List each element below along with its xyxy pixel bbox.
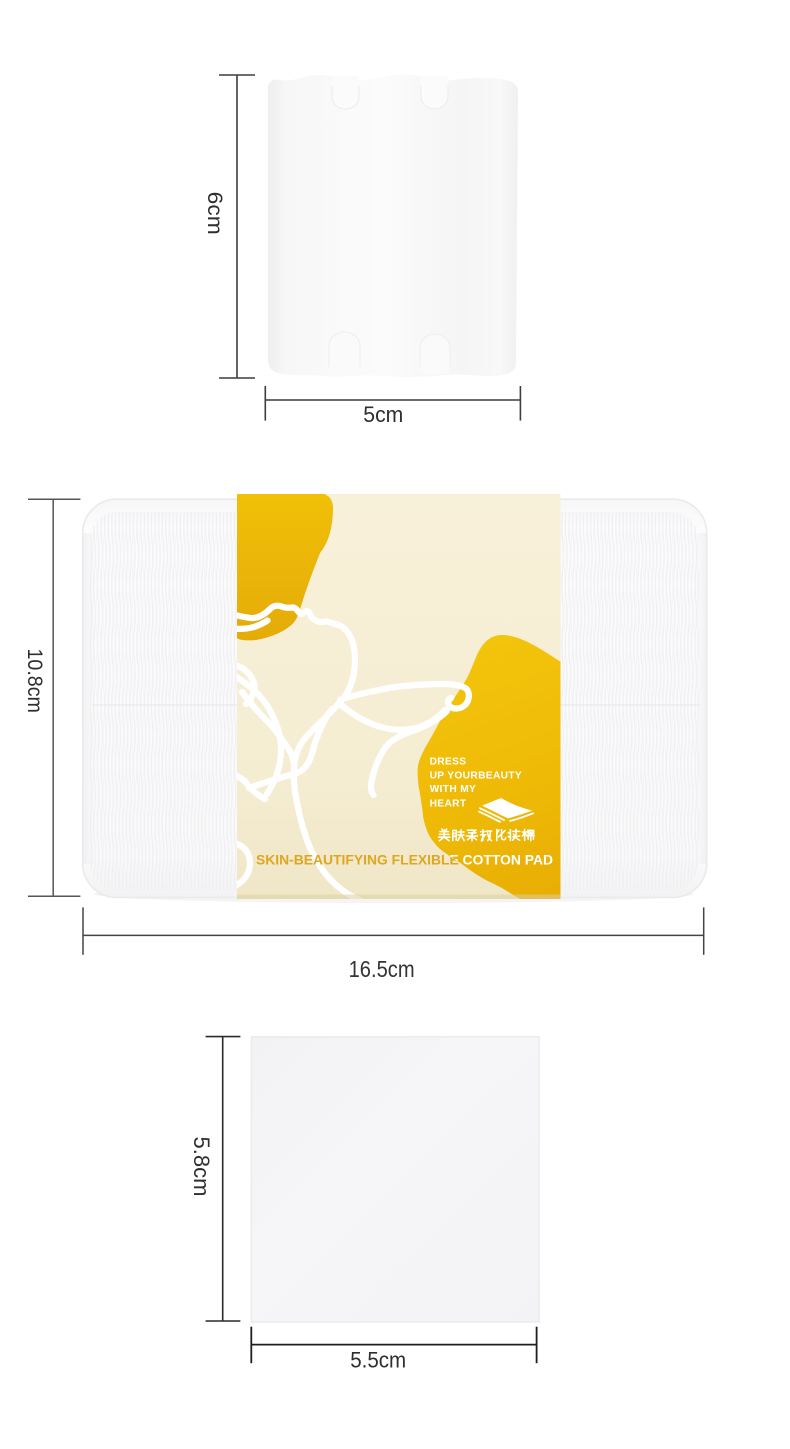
svg-text:10.8cm: 10.8cm bbox=[23, 648, 47, 713]
svg-text:DRESS: DRESS bbox=[430, 756, 467, 767]
svg-text:16.5cm: 16.5cm bbox=[349, 956, 415, 982]
svg-text:6cm: 6cm bbox=[203, 192, 227, 235]
svg-text:5cm: 5cm bbox=[363, 402, 403, 427]
svg-text:UP YOURBEAUTY: UP YOURBEAUTY bbox=[430, 771, 522, 782]
svg-text:HEART: HEART bbox=[430, 799, 467, 810]
svg-text:WITH MY: WITH MY bbox=[430, 784, 477, 795]
svg-text:5.8cm: 5.8cm bbox=[189, 1137, 214, 1197]
svg-text:5.5cm: 5.5cm bbox=[350, 1347, 406, 1372]
